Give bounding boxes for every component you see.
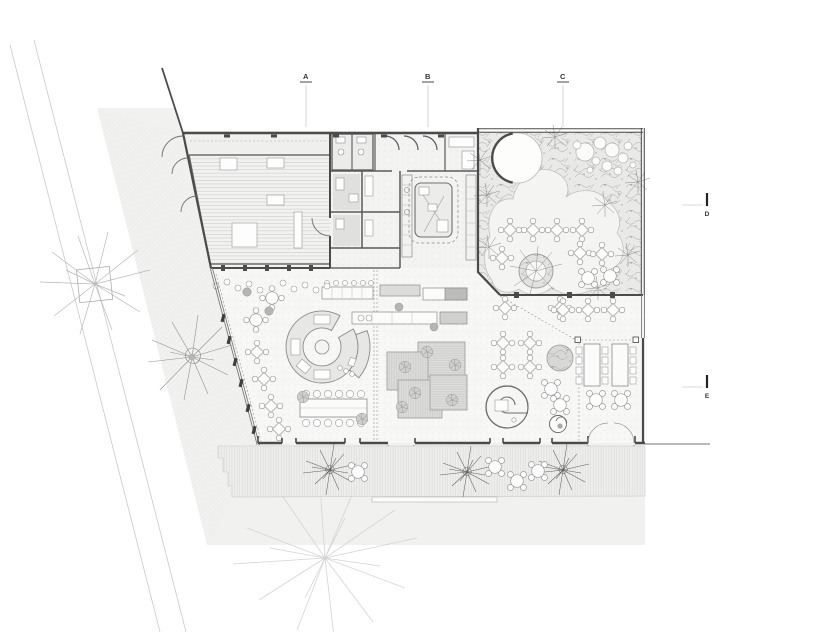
section-label: D	[705, 211, 710, 218]
garden	[467, 125, 650, 300]
garden-tree-circle	[492, 133, 542, 183]
wood-floor	[189, 155, 330, 264]
floor-plan-drawing: A B C D E	[0, 0, 818, 632]
service-rooms	[330, 131, 478, 268]
section-label: E	[705, 393, 710, 400]
terrace-table	[349, 463, 368, 482]
section-label: B	[425, 72, 431, 81]
section-label: C	[560, 72, 566, 81]
small-spiral-planter	[550, 416, 567, 433]
hall-top-band	[185, 137, 330, 153]
terrace-table	[486, 458, 505, 477]
section-label: A	[303, 72, 309, 81]
plan-sheet: A B C D E	[0, 0, 818, 632]
spiral-booth	[486, 386, 528, 428]
terrace	[218, 444, 645, 502]
terrace-step	[372, 497, 497, 502]
indoor-planter	[547, 345, 573, 371]
